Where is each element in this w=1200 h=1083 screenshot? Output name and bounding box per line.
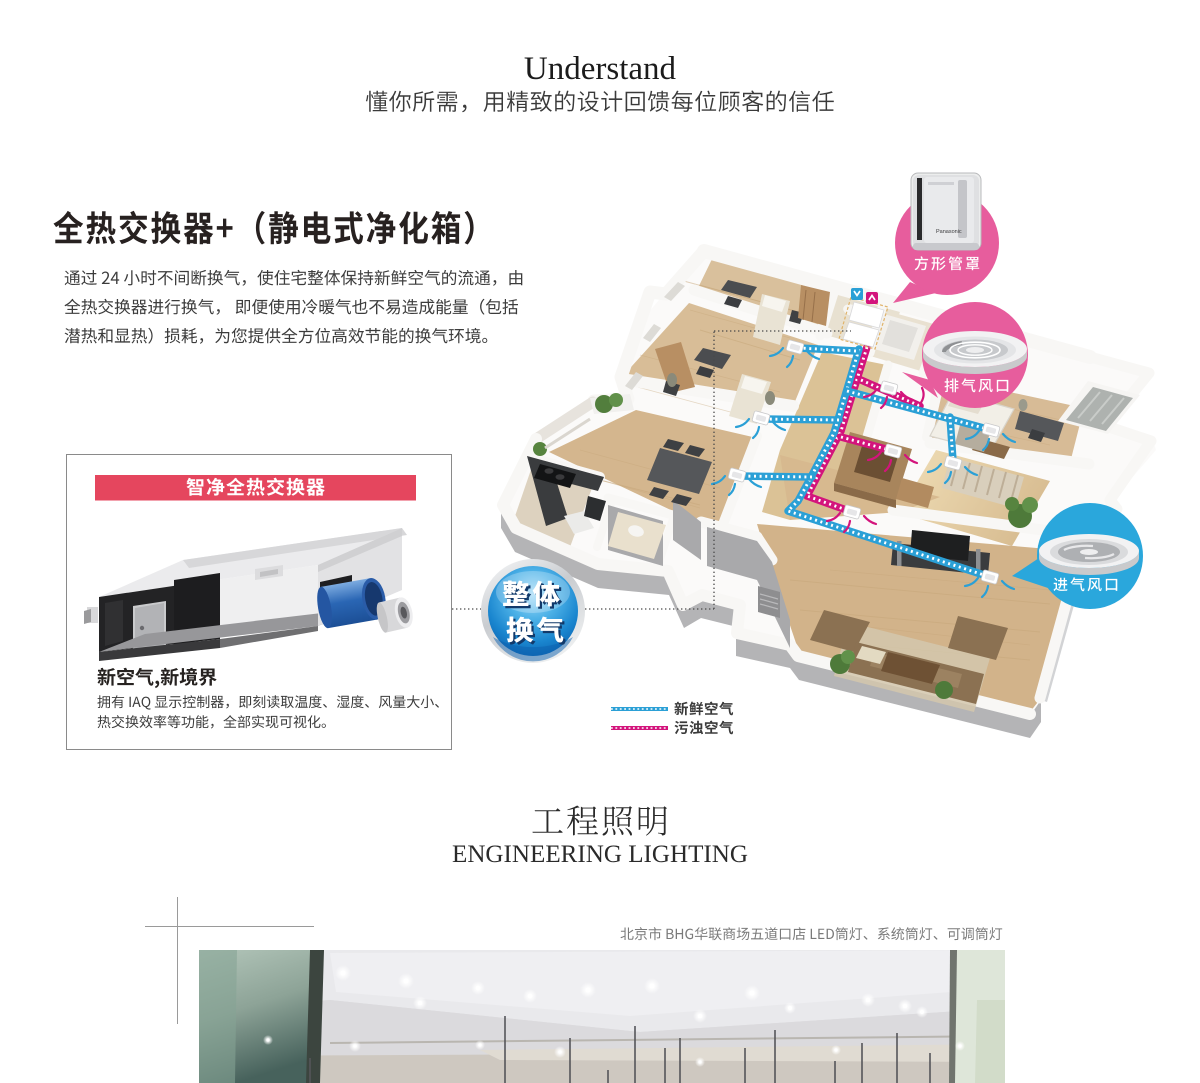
svg-text:ENGINEERING LIGHTING: ENGINEERING LIGHTING xyxy=(452,841,748,868)
svg-text:Understand: Understand xyxy=(524,51,677,87)
svg-text:Panasonic: Panasonic xyxy=(936,229,962,235)
